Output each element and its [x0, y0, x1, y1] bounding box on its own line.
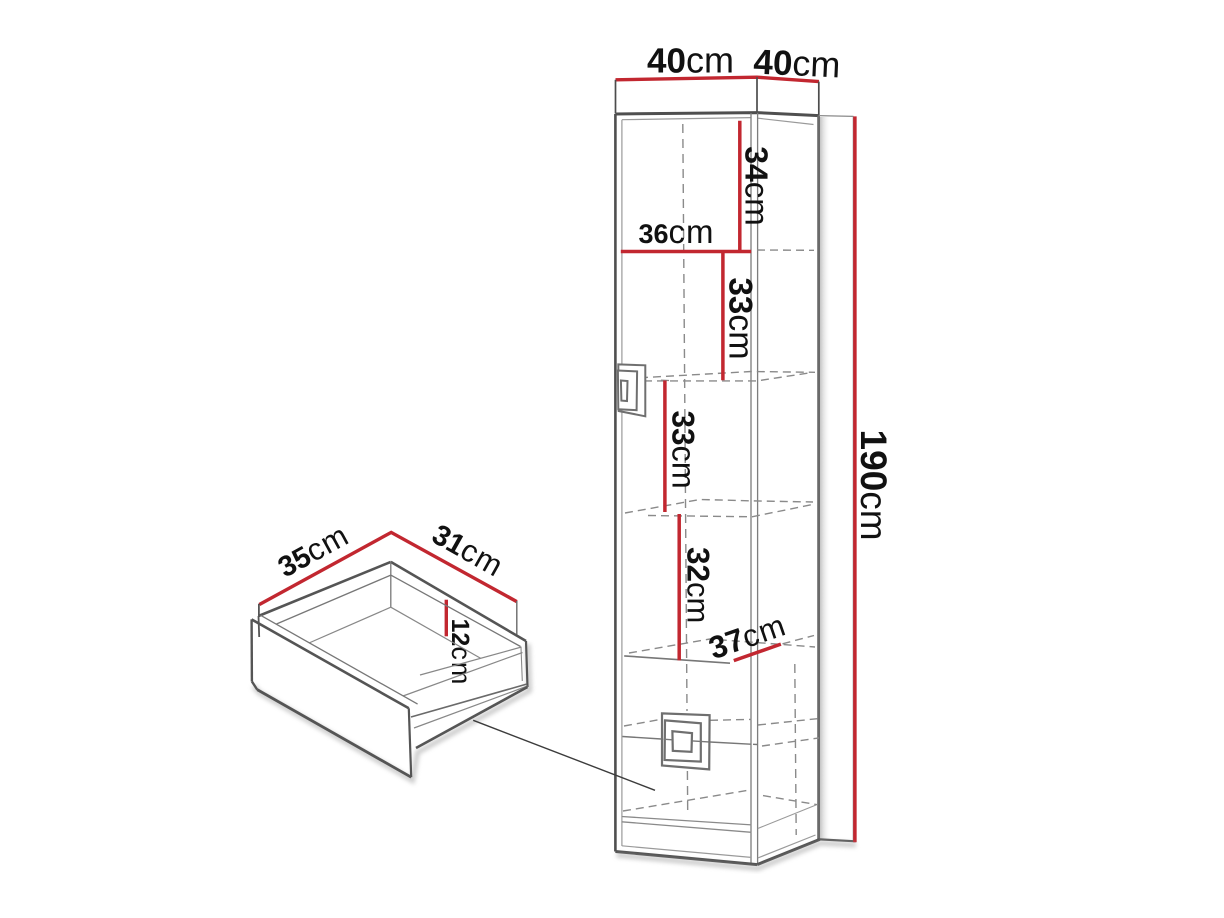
svg-text:32cm: 32cm	[681, 547, 717, 623]
svg-text:33cm: 33cm	[665, 411, 701, 489]
svg-text:36cm: 36cm	[639, 213, 715, 250]
svg-text:12cm: 12cm	[446, 619, 476, 687]
svg-text:33cm: 33cm	[721, 278, 759, 360]
svg-text:190cm: 190cm	[853, 430, 894, 541]
svg-text:40cm: 40cm	[753, 41, 842, 86]
svg-text:34cm: 34cm	[739, 146, 776, 226]
svg-text:40cm: 40cm	[647, 40, 734, 81]
